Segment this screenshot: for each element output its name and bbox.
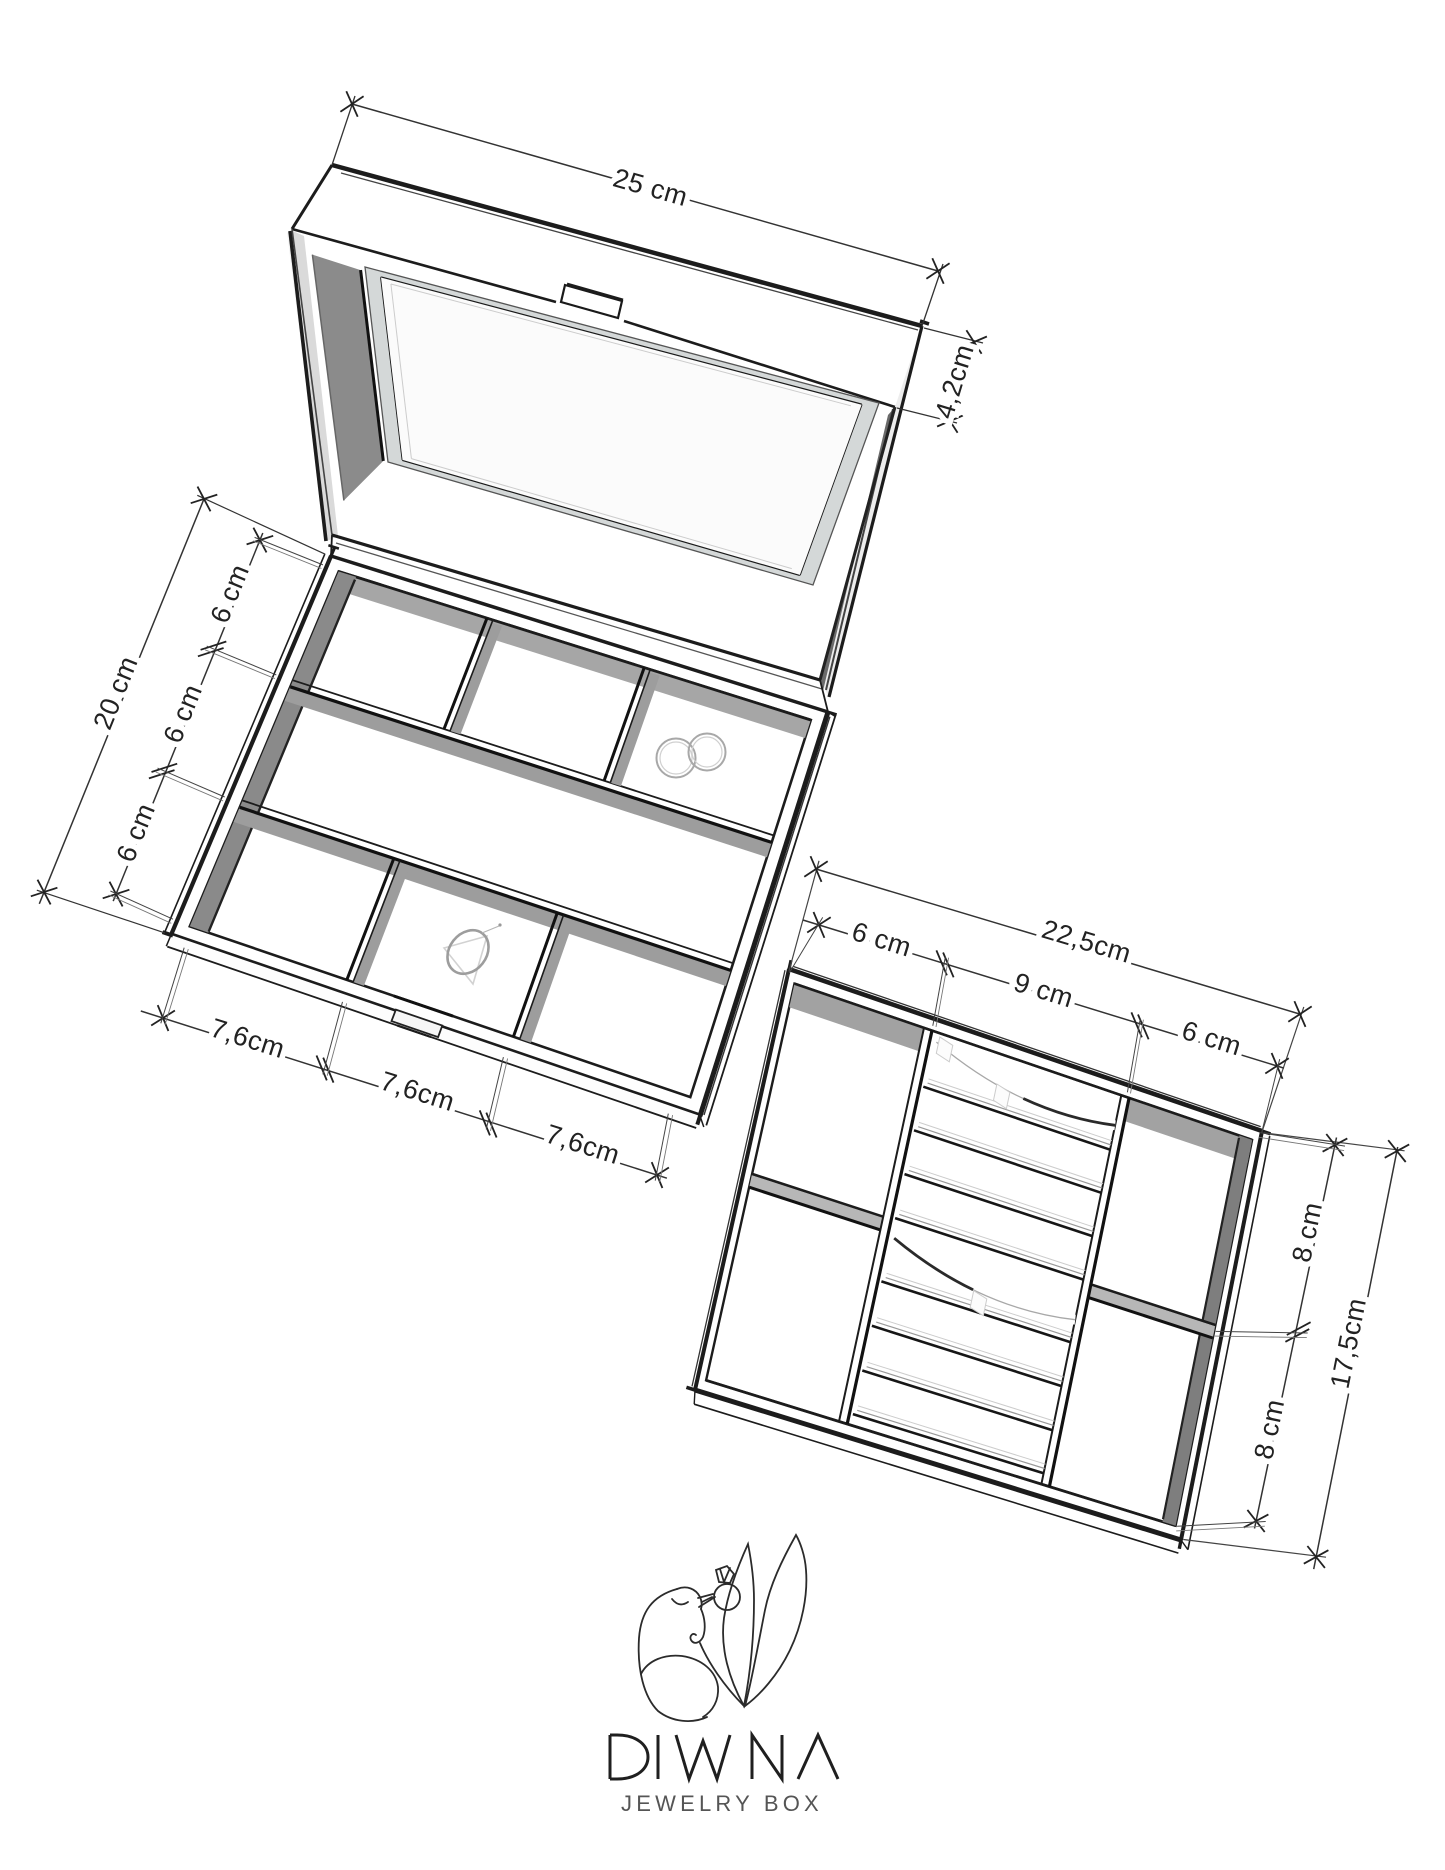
svg-text:JEWELRY BOX: JEWELRY BOX [621,1791,823,1816]
